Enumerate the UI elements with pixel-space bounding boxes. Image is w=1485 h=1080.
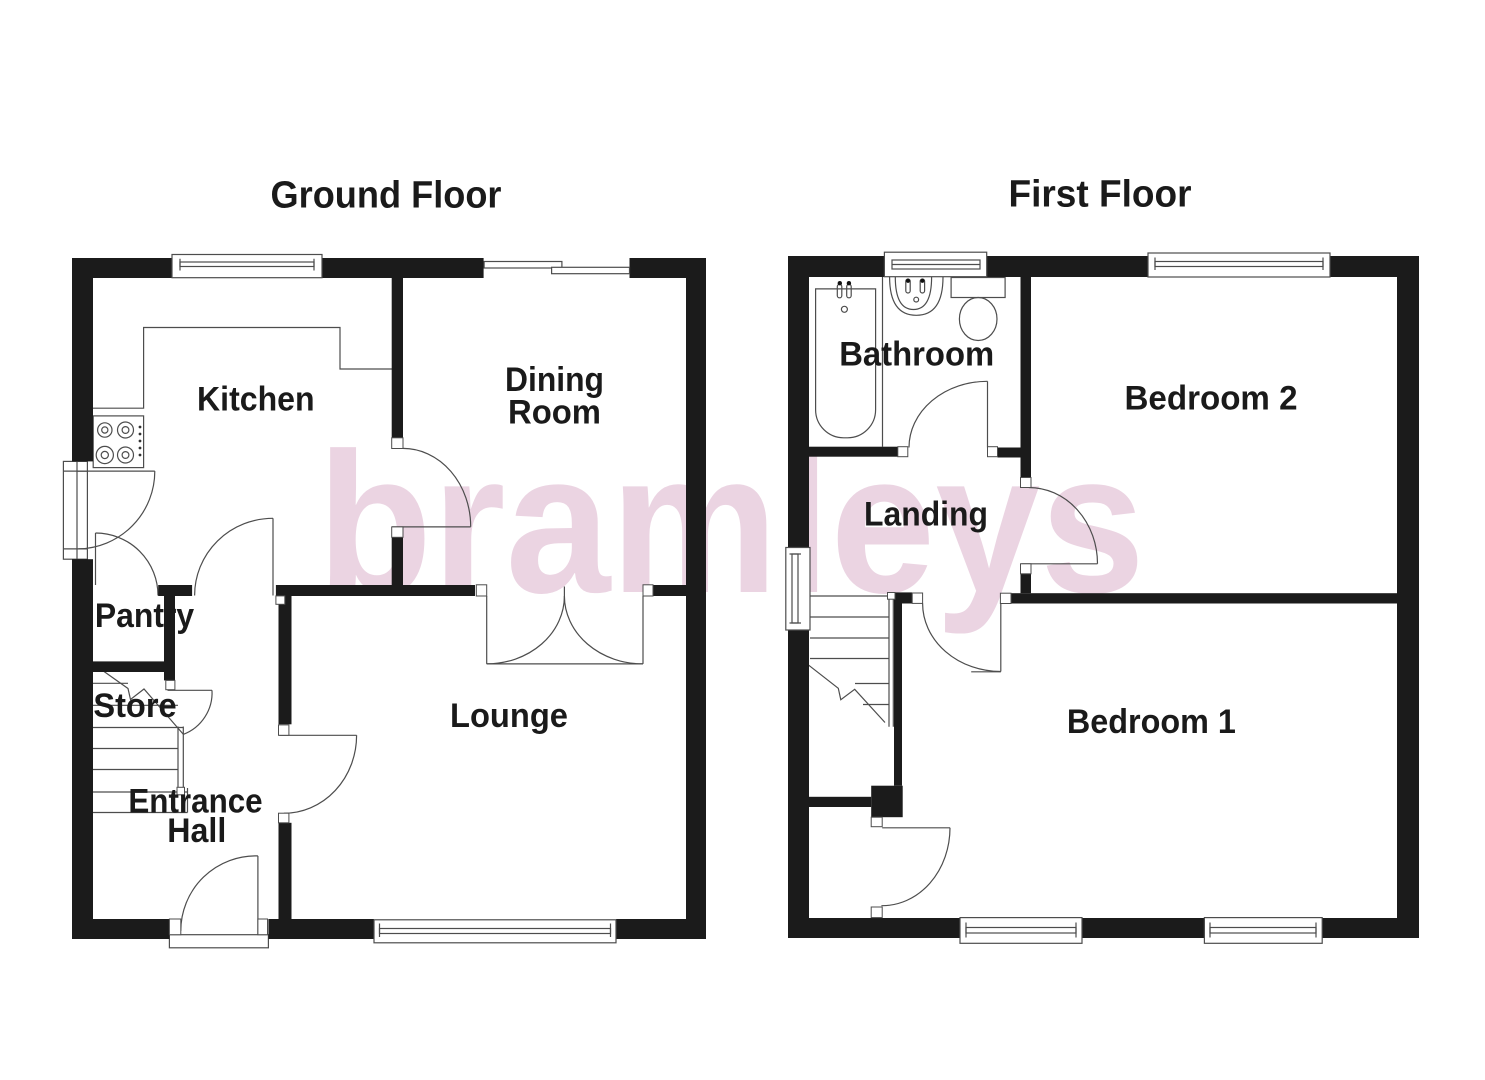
svg-text:Pantry: Pantry bbox=[95, 597, 194, 635]
svg-text:Bedroom 2: Bedroom 2 bbox=[1125, 380, 1298, 418]
svg-text:First Floor: First Floor bbox=[1009, 174, 1192, 216]
svg-text:Ground Floor: Ground Floor bbox=[271, 175, 502, 217]
svg-text:Kitchen: Kitchen bbox=[197, 381, 315, 419]
svg-text:Room: Room bbox=[508, 394, 601, 432]
svg-text:Hall: Hall bbox=[167, 812, 226, 850]
svg-text:Bedroom 1: Bedroom 1 bbox=[1067, 703, 1236, 741]
svg-text:Lounge: Lounge bbox=[450, 697, 568, 735]
svg-text:Bathroom: Bathroom bbox=[839, 336, 994, 374]
svg-text:Landing: Landing bbox=[864, 496, 988, 534]
svg-text:Store: Store bbox=[93, 687, 176, 725]
